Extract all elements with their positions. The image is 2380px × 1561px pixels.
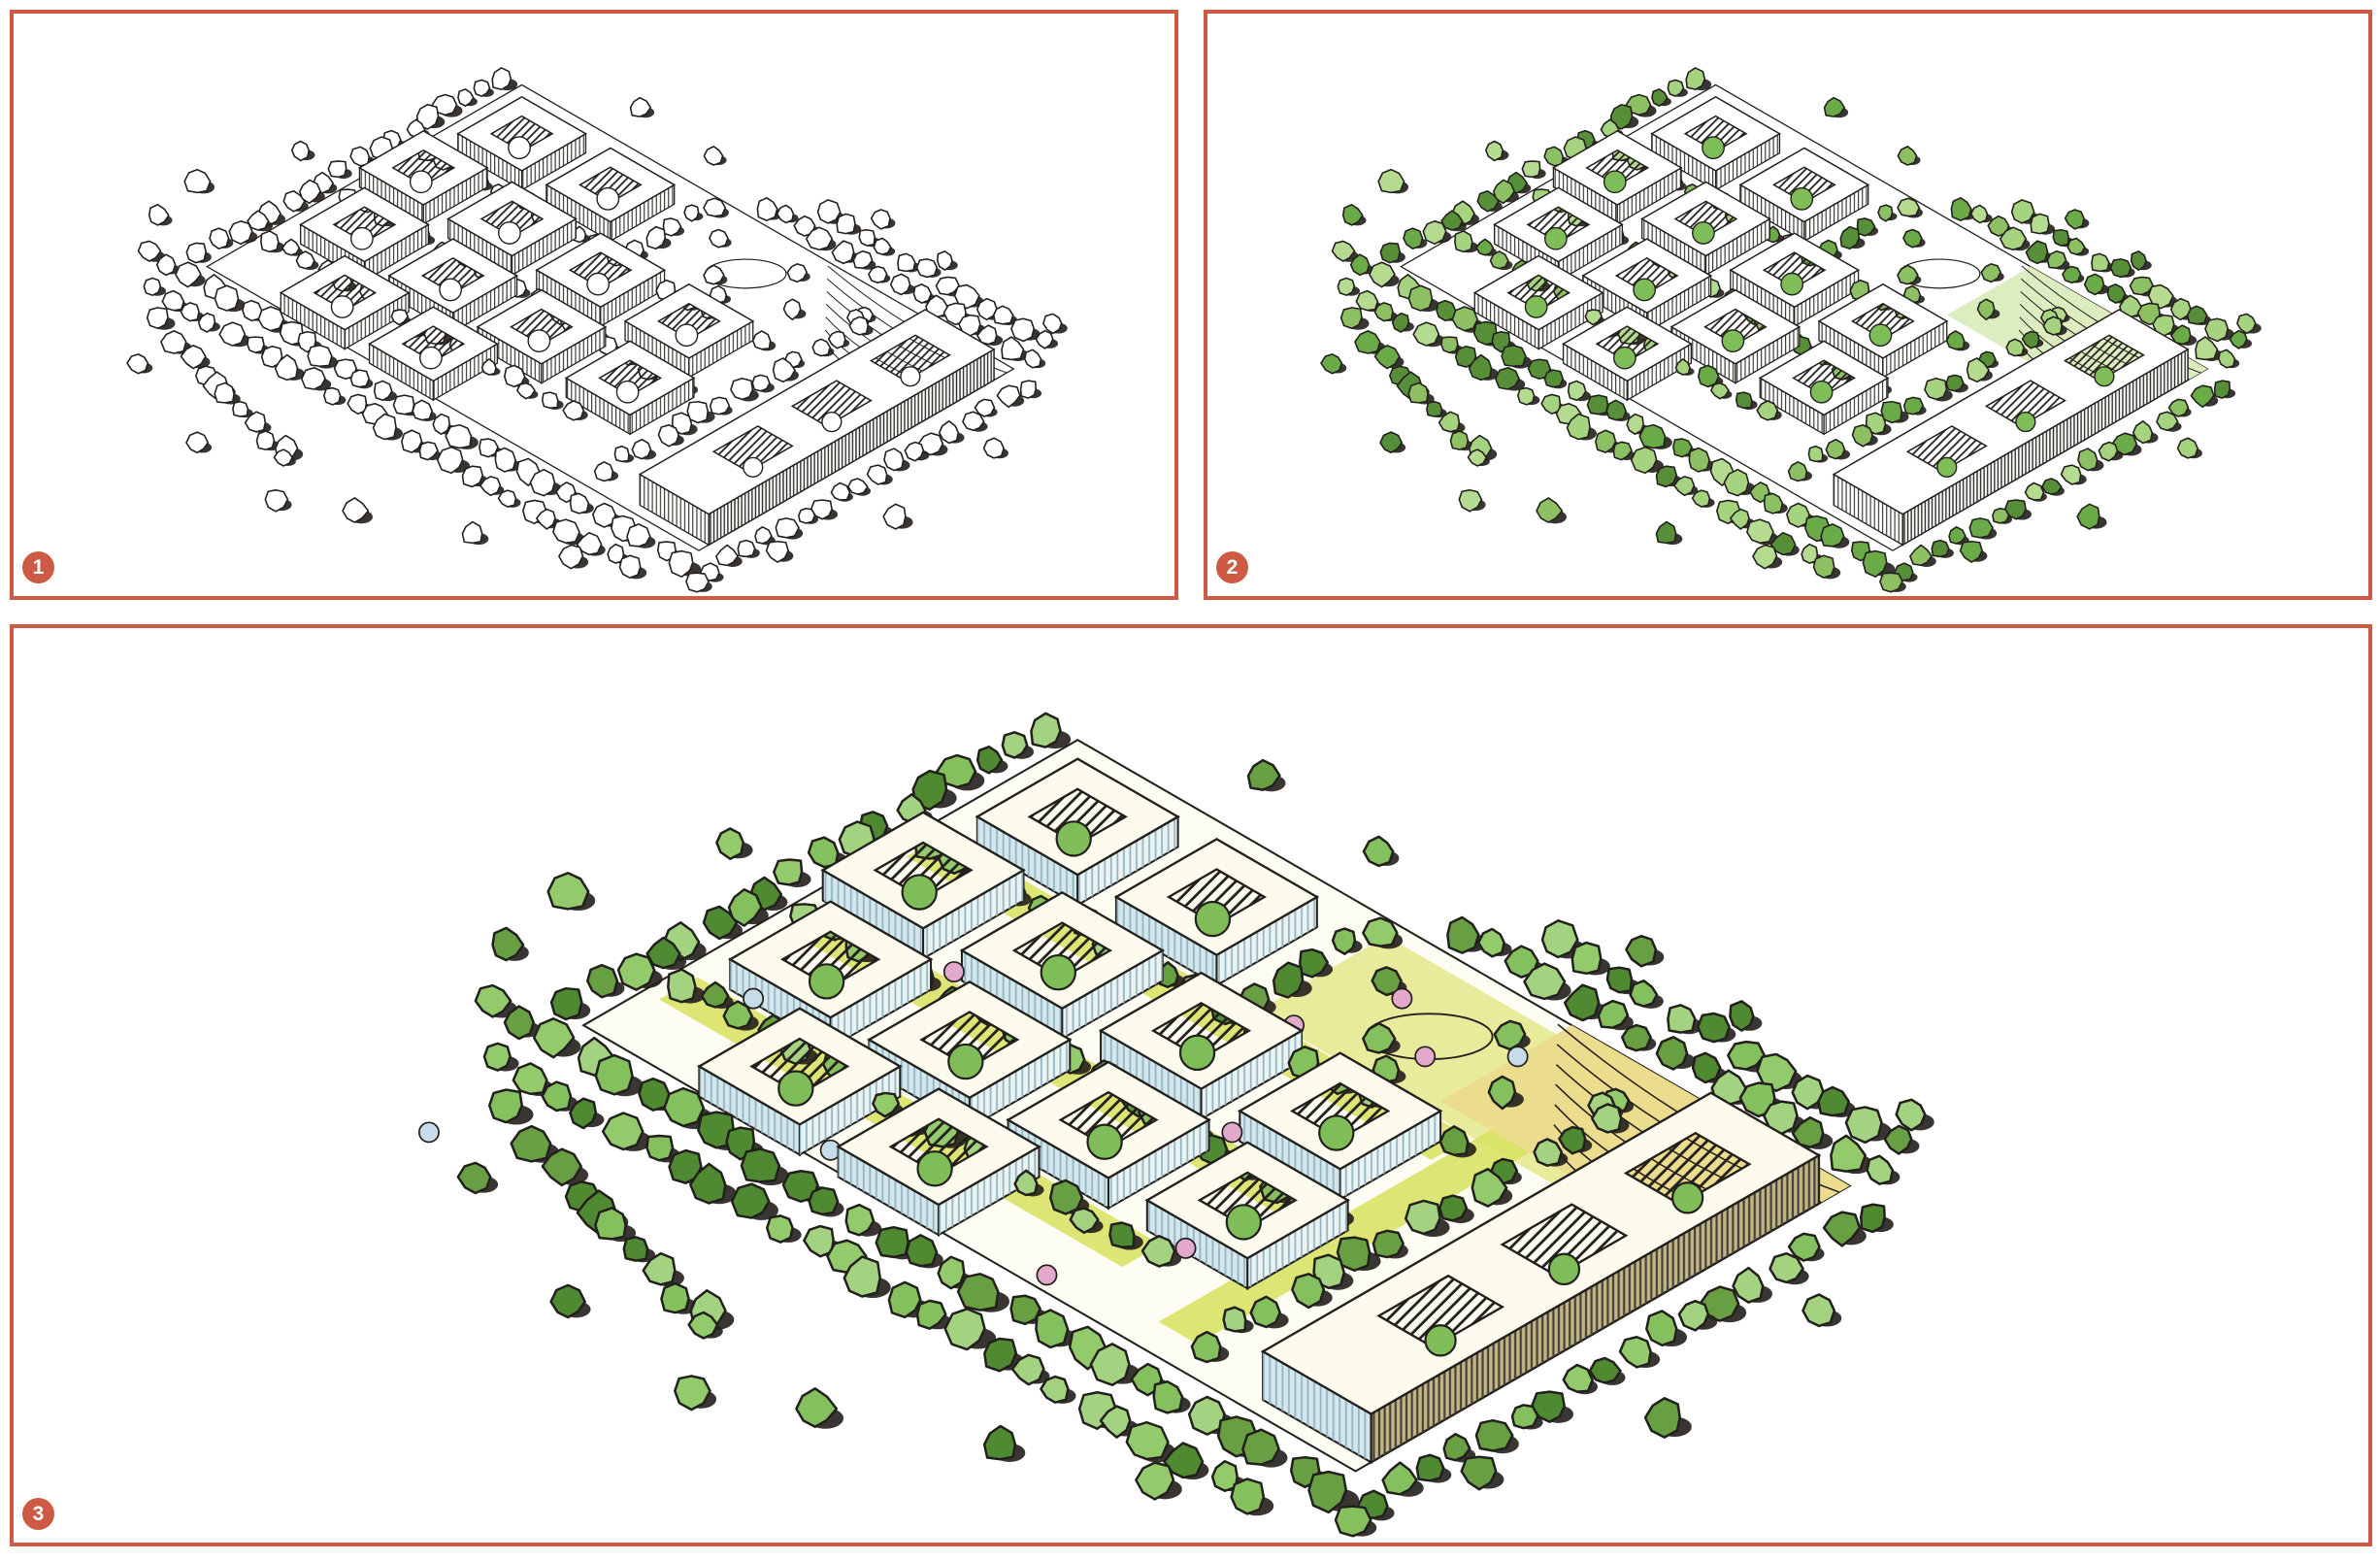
panel-stage-3: 3 xyxy=(10,624,2372,1546)
three-stage-site-illustration-figure: 1 2 3 xyxy=(0,0,2380,1561)
panel-stage-1: 1 xyxy=(10,10,1178,600)
illustration-content xyxy=(1321,68,2262,592)
top-row: 1 2 xyxy=(10,10,2372,600)
site-axonometric-green-tint-drawing xyxy=(1207,14,2368,596)
stage-2-number-badge: 2 xyxy=(1216,551,1248,583)
stage-1-number-badge: 1 xyxy=(22,551,54,583)
illustration-content xyxy=(419,714,1934,1537)
stage-3-number-badge: 3 xyxy=(22,1498,54,1530)
site-axonometric-line-drawing xyxy=(14,14,1174,596)
panel-stage-2: 2 xyxy=(1204,10,2372,600)
stage-number: 3 xyxy=(33,1504,45,1524)
stage-number: 1 xyxy=(33,557,45,578)
stage-number: 2 xyxy=(1227,557,1239,578)
site-axonometric-full-color-drawing xyxy=(14,628,2368,1543)
illustration-content xyxy=(127,68,1068,592)
